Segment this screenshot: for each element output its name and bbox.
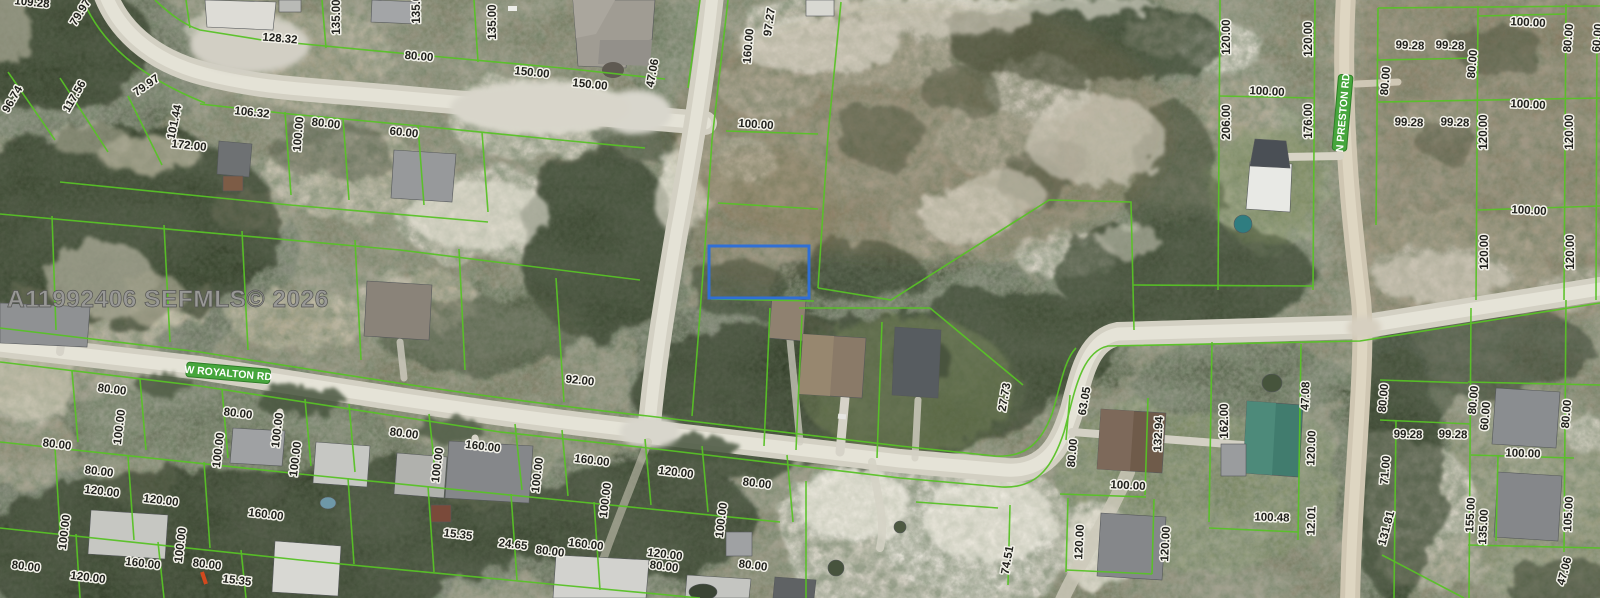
- svg-text:80.00: 80.00: [1466, 49, 1480, 79]
- svg-text:105.00: 105.00: [1562, 496, 1576, 532]
- svg-text:80.00: 80.00: [1562, 23, 1576, 53]
- svg-text:100.00: 100.00: [1505, 447, 1541, 460]
- svg-text:99.28: 99.28: [1438, 429, 1468, 442]
- svg-text:120.00: 120.00: [1478, 114, 1490, 149]
- svg-text:80.00: 80.00: [1379, 66, 1393, 96]
- svg-text:A11992406 SEFMLS© 2026: A11992406 SEFMLS© 2026: [7, 286, 329, 313]
- svg-text:100.00: 100.00: [1110, 479, 1146, 493]
- svg-text:71.00: 71.00: [1379, 455, 1393, 485]
- svg-text:99.28: 99.28: [1394, 116, 1424, 130]
- svg-text:60.00: 60.00: [1591, 23, 1600, 53]
- svg-text:135.00: 135.00: [1477, 509, 1491, 545]
- svg-text:120.00: 120.00: [1221, 19, 1233, 54]
- svg-text:206.00: 206.00: [1221, 104, 1233, 139]
- svg-text:176.00: 176.00: [1303, 103, 1315, 138]
- svg-text:135.00: 135.00: [487, 4, 499, 39]
- svg-text:60.00: 60.00: [1479, 401, 1493, 431]
- svg-text:99.28: 99.28: [1435, 39, 1465, 53]
- svg-text:47.08: 47.08: [1300, 381, 1313, 411]
- svg-text:80.00: 80.00: [1467, 385, 1481, 415]
- svg-text:99.28: 99.28: [1395, 39, 1425, 53]
- svg-text:80.00: 80.00: [1066, 438, 1080, 468]
- svg-text:135.00: 135.00: [411, 0, 423, 24]
- svg-text:80.00: 80.00: [1560, 399, 1574, 429]
- svg-text:120.00: 120.00: [1564, 114, 1576, 149]
- svg-text:100.00: 100.00: [1510, 16, 1546, 30]
- svg-text:100.48: 100.48: [1254, 511, 1290, 524]
- svg-text:100.00: 100.00: [1510, 98, 1546, 112]
- svg-text:155.00: 155.00: [1464, 497, 1478, 533]
- svg-text:80.00: 80.00: [1377, 383, 1391, 413]
- svg-text:135.00: 135.00: [331, 0, 343, 35]
- svg-text:162.00: 162.00: [1219, 403, 1231, 438]
- svg-text:99.28: 99.28: [1440, 116, 1470, 130]
- svg-text:132.94: 132.94: [1152, 416, 1166, 452]
- svg-text:99.28: 99.28: [1393, 429, 1423, 442]
- svg-text:120.00: 120.00: [1303, 21, 1315, 56]
- svg-text:100.00: 100.00: [1511, 204, 1547, 218]
- svg-text:120.00: 120.00: [1073, 524, 1087, 560]
- svg-text:100.00: 100.00: [738, 118, 774, 132]
- svg-text:120.00: 120.00: [1565, 234, 1577, 269]
- svg-text:120.00: 120.00: [1305, 430, 1318, 466]
- svg-text:100.00: 100.00: [1249, 85, 1285, 99]
- svg-text:120.00: 120.00: [1159, 526, 1173, 562]
- svg-text:80.00: 80.00: [404, 50, 434, 64]
- svg-text:12.01: 12.01: [1306, 506, 1319, 536]
- svg-text:120.00: 120.00: [1479, 234, 1491, 269]
